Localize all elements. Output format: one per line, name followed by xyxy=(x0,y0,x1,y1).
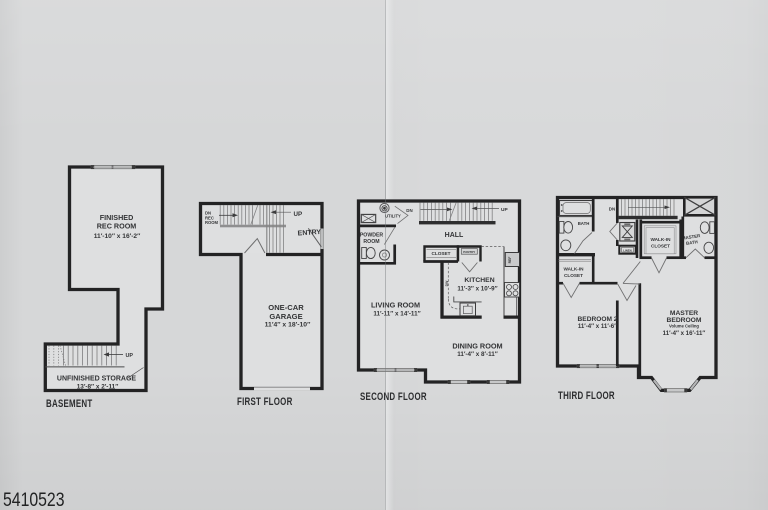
svg-text:HALL: HALL xyxy=(445,232,464,239)
svg-text:POWDER: POWDER xyxy=(360,233,384,239)
svg-text:MASTER: MASTER xyxy=(670,310,698,317)
svg-text:BEDROOM 2: BEDROOM 2 xyxy=(578,316,618,323)
svg-text:GARAGE: GARAGE xyxy=(269,312,302,321)
svg-text:CLOSET: CLOSET xyxy=(564,273,583,278)
svg-text:13′-8″ x 2′-11″: 13′-8″ x 2′-11″ xyxy=(77,384,119,391)
svg-text:PANTRY: PANTRY xyxy=(463,250,475,254)
svg-text:LIVING ROOM: LIVING ROOM xyxy=(371,301,420,310)
svg-text:DN: DN xyxy=(406,208,412,213)
svg-text:LINEN: LINEN xyxy=(623,248,631,252)
svg-text:CLOSET: CLOSET xyxy=(431,251,450,256)
svg-text:11′4″ x 18′-10″: 11′4″ x 18′-10″ xyxy=(265,321,311,328)
svg-text:REC ROOM: REC ROOM xyxy=(97,222,137,231)
svg-text:11′-10″ x 16′-2″: 11′-10″ x 16′-2″ xyxy=(94,233,141,240)
svg-text:WALK-IN: WALK-IN xyxy=(563,267,584,272)
svg-text:DN: DN xyxy=(609,207,615,212)
svg-text:REF: REF xyxy=(508,257,512,264)
svg-text:Volume Ceiling: Volume Ceiling xyxy=(669,323,699,328)
svg-text:UP: UP xyxy=(126,353,134,359)
svg-text:UNFINISHED STORAGE: UNFINISHED STORAGE xyxy=(57,376,137,383)
svg-text:ONE-CAR: ONE-CAR xyxy=(268,303,304,312)
svg-text:ROOM: ROOM xyxy=(205,220,219,225)
svg-text:11′-4″ x 8′-11″: 11′-4″ x 8′-11″ xyxy=(457,351,498,358)
svg-text:DW: DW xyxy=(445,280,449,286)
svg-text:11′-3″ x 10′-9″: 11′-3″ x 10′-9″ xyxy=(457,285,497,292)
svg-text:11′-11″ x 14′-11″: 11′-11″ x 14′-11″ xyxy=(373,311,420,318)
svg-text:11′-4″ x 16′-11″: 11′-4″ x 16′-11″ xyxy=(663,330,706,337)
svg-text:UP: UP xyxy=(294,211,303,218)
svg-text:ROOM: ROOM xyxy=(363,239,379,245)
svg-text:11′-4″ x 11′-6″: 11′-4″ x 11′-6″ xyxy=(578,323,617,330)
svg-text:CLOSET: CLOSET xyxy=(651,243,670,248)
svg-text:WALK-IN: WALK-IN xyxy=(650,237,671,242)
svg-text:UTILITY: UTILITY xyxy=(385,214,401,219)
svg-text:BATH: BATH xyxy=(578,221,590,226)
svg-text:KITCHEN: KITCHEN xyxy=(464,277,494,284)
svg-text:UP: UP xyxy=(501,207,508,213)
svg-text:FINISHED: FINISHED xyxy=(100,213,134,222)
svg-text:DINING ROOM: DINING ROOM xyxy=(452,342,502,351)
